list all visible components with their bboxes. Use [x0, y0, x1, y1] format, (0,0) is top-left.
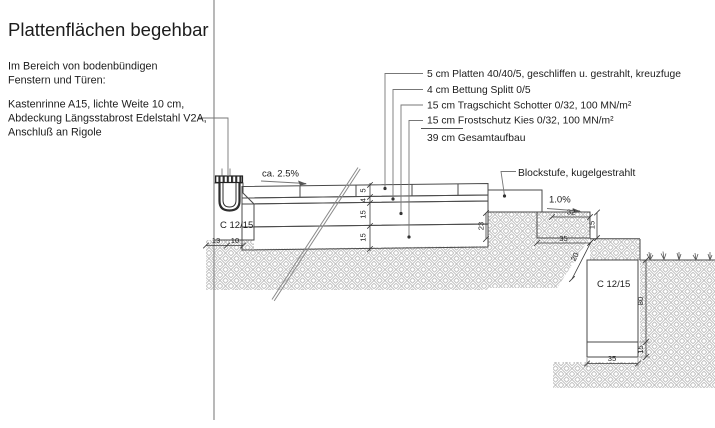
foundation	[587, 260, 638, 357]
drain-grate	[216, 176, 243, 183]
layer-annotation-platten: 5 cm Platten 40/40/5, geschliffen u. ges…	[427, 69, 681, 80]
annotation-leaders	[385, 74, 423, 237]
dim-step-right-height: 15	[588, 221, 597, 229]
drain-note-line1: Kastenrinne A15, lichte Weite 10 cm,	[8, 99, 184, 111]
dim-footing-height: 15	[636, 345, 645, 353]
blockstufe-block	[488, 190, 542, 212]
dim-foundation-height: 80	[636, 297, 645, 305]
drain-note-line3: Anschluß an Rigole	[8, 127, 102, 139]
foundation-block	[587, 260, 638, 342]
dim-step-top-width: 32	[567, 208, 575, 217]
concrete-foundation-label: C 12/15	[597, 279, 630, 290]
dim-step-left-height: 23	[477, 222, 486, 230]
drain-anchor-marks	[222, 169, 230, 176]
blockstufe-label: Blockstufe, kugelgestrahlt	[518, 168, 635, 179]
layer-annotation-frostschutz: 15 cm Frostschutz Kies 0/32, 100 MN/m²	[427, 116, 614, 127]
context-note-line1: Im Bereich von bodenbündigen	[8, 61, 157, 73]
dim-chain-bettung: 4	[359, 198, 368, 202]
concrete-drain-label: C 12/15	[220, 220, 253, 231]
drawing-title: Plattenflächen begehbar	[8, 19, 209, 40]
section-drawing: Plattenflächen begehbar Im Bereich von b…	[0, 0, 715, 428]
layer-annotation-tragschicht: 15 cm Tragschicht Schotter 0/32, 100 MN/…	[427, 101, 632, 112]
grass	[647, 252, 712, 261]
dim-chain-platten: 5	[359, 188, 368, 192]
layer-annotation-bettung: 4 cm Bettung Splitt 0/5	[427, 85, 531, 96]
dim-foundation-width: 35	[608, 354, 616, 363]
drain-note-line2: Abdeckung Längsstabrost Edelstahl V2A,	[8, 113, 207, 125]
slope-step-label: 1.0%	[549, 195, 571, 206]
context-note-line2: Fenstern und Türen:	[8, 75, 106, 87]
dim-chain-tragschicht: 15	[359, 210, 368, 218]
dim-chain-frostschutz: 15	[359, 233, 368, 241]
dim-step-bottom-width: 35	[559, 234, 567, 243]
layer-annotation-total: 39 cm Gesamtaufbau	[427, 133, 526, 144]
blockstufe-leader	[501, 172, 516, 196]
leader-lines	[199, 74, 516, 239]
slope-main-label: ca. 2.5%	[262, 169, 300, 180]
dim-drain-a: 13	[212, 236, 220, 245]
dim-drain-b: 10	[231, 236, 239, 245]
construction-detail-drawing: Plattenflächen begehbar Im Bereich von b…	[0, 0, 715, 428]
